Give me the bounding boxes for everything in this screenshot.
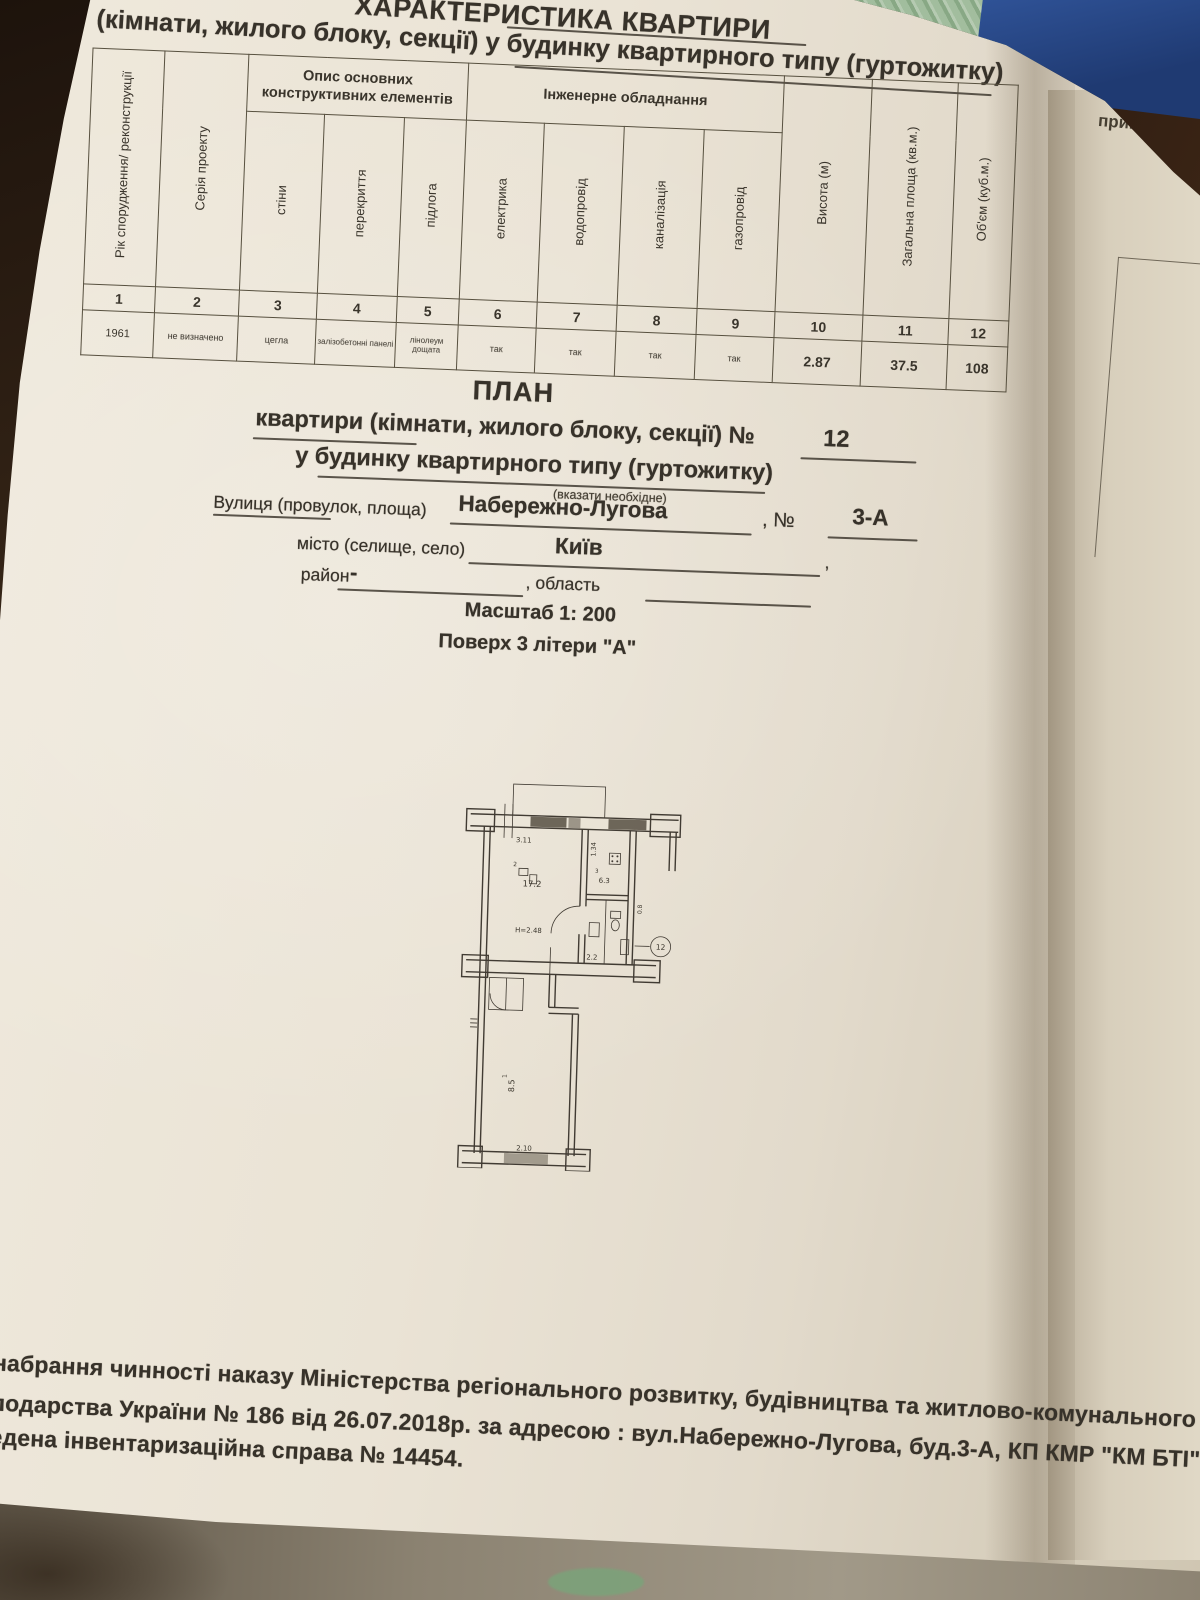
- footer-note: набрання чинності наказу Міністерства ре…: [0, 0, 1200, 1600]
- photo-of-document: ХАРАКТЕРИСТИКА КВАРТИРИ (кімнати, жилого…: [0, 0, 1200, 1600]
- green-object-on-floor: [548, 1568, 644, 1596]
